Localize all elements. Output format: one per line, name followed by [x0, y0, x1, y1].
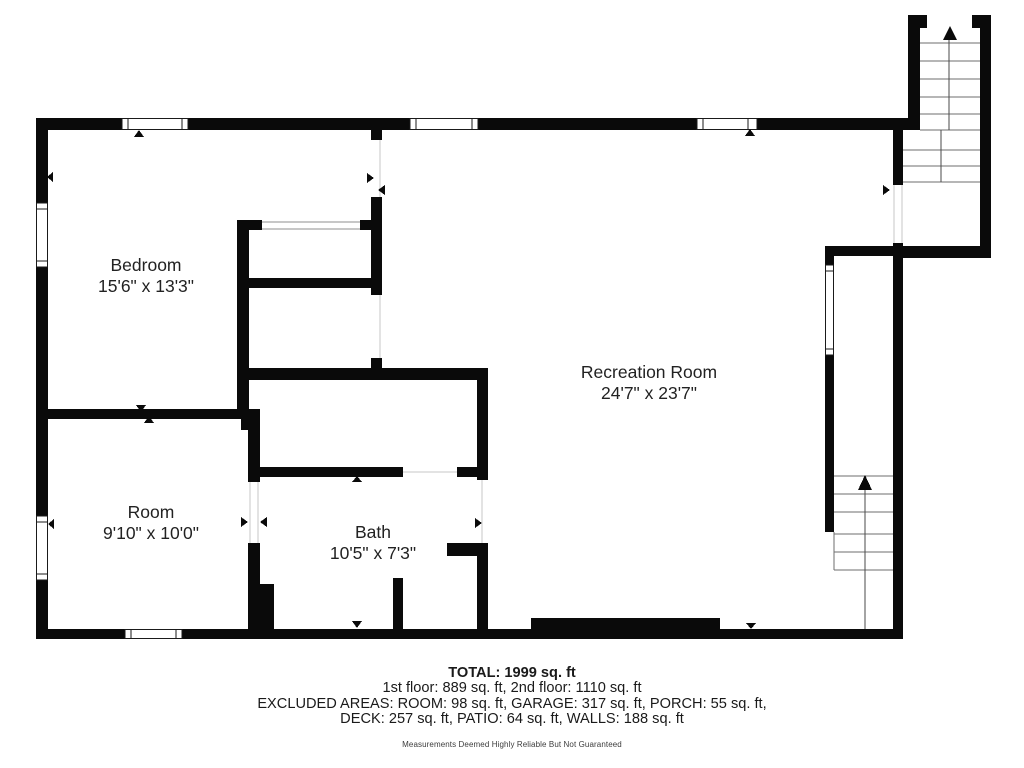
room-label-bedroom: Bedroom 15'6" x 13'3": [98, 255, 194, 297]
bedroom-right-wall: [237, 220, 249, 410]
floorplan-drawing: [0, 0, 1024, 768]
window: [125, 630, 182, 639]
opening-arrow-left-icon: [48, 519, 54, 529]
room-name: Recreation Room: [581, 362, 717, 383]
bath-right-wall-upper: [477, 380, 488, 480]
window: [826, 265, 834, 355]
bath-right-wall-lower: [477, 543, 488, 629]
lower-stairwell: [825, 246, 903, 639]
closet-divider-wall: [238, 278, 377, 288]
excluded-areas-text-2: DECK: 257 sq. ft, PATIO: 64 sq. ft, WALL…: [0, 712, 1024, 727]
opening-arrow-left-icon: [260, 517, 267, 527]
floorplan-page: { "floorplan": { "rooms": [ {"id": "bedr…: [0, 0, 1024, 768]
stairs-up-arrow-icon: [858, 475, 872, 490]
stair-wall-right-cap: [972, 15, 991, 28]
hall-wall-mid: [371, 197, 382, 295]
stair-wall-right: [980, 15, 991, 258]
room-label-bath: Bath 10'5" x 7'3": [330, 522, 416, 564]
closet-front-stub-left: [237, 220, 262, 230]
deck-wall-block: [531, 618, 720, 629]
floor-areas-text: 1st floor: 889 sq. ft, 2nd floor: 1110 s…: [0, 681, 1024, 696]
bath-bottom-divider: [393, 578, 403, 629]
disclaimer-text: Measurements Deemed Highly Reliable But …: [0, 737, 1024, 752]
upper-stair-enclosure: [893, 15, 991, 258]
opening-arrow-down-icon: [746, 623, 756, 629]
hall-wall-top-stub: [371, 130, 382, 140]
window: [37, 516, 48, 580]
room-dimensions: 10'5" x 7'3": [330, 543, 416, 564]
area-summary: TOTAL: 1999 sq. ft 1st floor: 889 sq. ft…: [0, 666, 1024, 752]
opening-arrow-right-icon: [241, 517, 248, 527]
opening-arrow-right-icon: [367, 173, 374, 183]
room-right-wall-upper: [248, 419, 260, 482]
opening-arrow-right-icon: [883, 185, 890, 195]
room-top-wall: [36, 409, 253, 419]
room-name: Room: [103, 502, 199, 523]
stairs-up-arrow-icon: [943, 26, 957, 40]
window: [122, 119, 188, 130]
opening-arrow-down-icon: [352, 621, 362, 628]
room-right-wall-block: [248, 584, 274, 629]
room-dimensions: 24'7" x 23'7": [581, 383, 717, 404]
opening-arrow-up-icon: [134, 130, 144, 137]
door-openings: [250, 140, 902, 543]
room-name: Bath: [330, 522, 416, 543]
room-label-recreation: Recreation Room 24'7" x 23'7": [581, 362, 717, 404]
corridor-left-wall-lower: [825, 355, 834, 532]
room-name: Bedroom: [98, 255, 194, 276]
bath-nook-stub: [447, 543, 477, 556]
corridor-top-wall: [825, 246, 893, 256]
room-label-room: Room 9'10" x 10'0": [103, 502, 199, 544]
room-dimensions: 15'6" x 13'3": [98, 276, 194, 297]
room-dimensions: 9'10" x 10'0": [103, 523, 199, 544]
opening-arrow-left-icon: [378, 185, 385, 195]
corridor-left-wall-upper: [825, 246, 834, 265]
stair-wall-left-cap: [908, 15, 927, 28]
corridor-right-wall: [893, 246, 903, 639]
opening-arrow-right-icon: [475, 518, 482, 528]
stair-door-wall: [893, 126, 903, 185]
total-area-text: TOTAL: 1999 sq. ft: [0, 666, 1024, 681]
excluded-areas-text: EXCLUDED AREAS: ROOM: 98 sq. ft, GARAGE:…: [0, 697, 1024, 712]
stair-enclosure-bottom-wall: [903, 246, 991, 258]
hall-long-wall: [238, 368, 488, 380]
window: [37, 203, 48, 267]
bath-top-wall: [260, 467, 403, 477]
window: [410, 119, 478, 130]
stair-wall-left: [908, 15, 920, 130]
bath-top-wall-stub: [457, 467, 488, 477]
